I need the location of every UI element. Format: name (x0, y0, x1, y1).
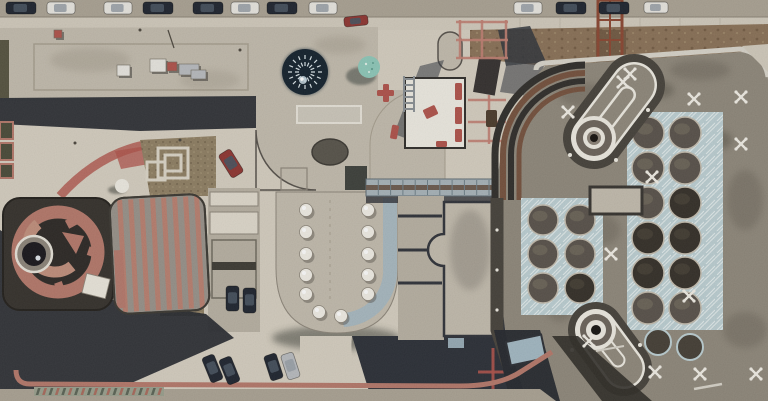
aerial-photo (0, 0, 768, 401)
aerial-photo-canvas (0, 0, 768, 401)
photo-grain (0, 0, 768, 401)
